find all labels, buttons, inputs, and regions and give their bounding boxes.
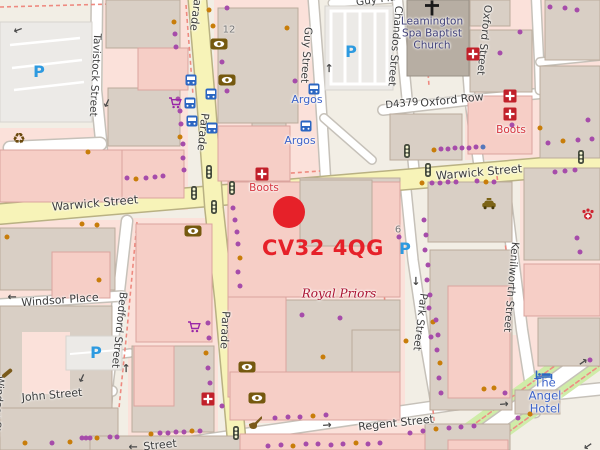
eye-icon — [249, 393, 266, 404]
poi-dot — [546, 141, 551, 146]
poi-dot — [80, 222, 85, 227]
poi-dot — [434, 427, 439, 432]
pharmacy-icon — [202, 393, 215, 406]
poi-dot — [590, 137, 595, 142]
pipe-icon — [248, 416, 262, 430]
john-street-label: John Street — [21, 386, 83, 404]
poi-dot — [484, 180, 489, 185]
poi-dot — [432, 148, 437, 153]
poi-dot — [321, 355, 326, 360]
poi-dot — [427, 306, 432, 311]
poi-dot — [426, 263, 431, 268]
poi-dot — [453, 146, 458, 151]
pharmacy-icon — [504, 90, 517, 103]
road-ref-d4379: D4379 — [385, 97, 419, 111]
park-street-label: Park Street — [411, 293, 430, 352]
poi-dot — [378, 441, 383, 446]
poi-dot — [460, 146, 465, 151]
poi-dot — [425, 278, 430, 283]
poi-dot — [424, 233, 429, 238]
oxford-street-label: Oxford Street — [474, 4, 493, 76]
oneway-arrow: → — [100, 96, 114, 109]
poi-dot — [153, 175, 158, 180]
poi-dot — [538, 126, 543, 131]
bus-stop-icon — [184, 97, 196, 109]
shopping-cart-icon — [187, 321, 201, 334]
church-cross-icon — [425, 1, 439, 16]
poi-dot — [516, 416, 521, 421]
postcode-label: CV32 4QG — [262, 236, 384, 260]
traffic-light-icon — [190, 186, 198, 200]
poi-dot — [211, 24, 216, 29]
poi-dot — [578, 250, 583, 255]
shopping-cart-icon — [168, 97, 182, 110]
poi-dot — [435, 348, 440, 353]
parade-label-top: Parade — [187, 0, 205, 32]
poi-dot — [220, 404, 225, 409]
eye-icon — [219, 75, 236, 86]
poi-dot — [548, 5, 553, 10]
poi-dot — [438, 361, 443, 366]
poi-dot — [420, 181, 425, 186]
poi-dot — [291, 444, 296, 449]
bus-stop-icon — [185, 74, 197, 86]
parking-icon: P — [33, 64, 45, 80]
poi-dot — [439, 391, 444, 396]
kenilworth-street-label: Kenilworth Street — [501, 241, 521, 332]
poi-dot — [421, 429, 426, 434]
poi-dot — [438, 181, 443, 186]
traffic-light-icon — [228, 181, 236, 195]
poi-dot — [447, 426, 452, 431]
poi-dot — [575, 8, 580, 13]
oneway-arrow: → — [411, 276, 422, 285]
poi-dot — [341, 442, 346, 447]
poi-dot — [172, 20, 177, 25]
poi-dot — [354, 441, 359, 446]
poi-dot — [86, 150, 91, 155]
poi-dot — [286, 415, 291, 420]
poi-dot — [231, 206, 236, 211]
baptist-church-label: Leamington Spa Baptist Church — [401, 16, 463, 51]
poi-dot — [208, 381, 213, 386]
oneway-arrow: → — [128, 442, 137, 450]
poi-dot — [206, 321, 211, 326]
poi-dot — [182, 430, 187, 435]
regent-street-label-west: Street — [143, 437, 178, 450]
poi-dot — [134, 177, 139, 182]
warwick-street-label-west: Warwick Street — [51, 192, 138, 213]
traffic-light-icon — [577, 150, 585, 164]
bus-stop-icon — [300, 120, 312, 132]
poi-dot — [266, 444, 271, 449]
poi-dot — [178, 135, 183, 140]
poi-dot — [182, 168, 187, 173]
traffic-light-icon — [424, 163, 432, 177]
poi-dot — [586, 118, 591, 123]
poi-dot — [166, 431, 171, 436]
poi-dot — [95, 436, 100, 441]
poi-dot — [481, 145, 486, 150]
pharmacy-icon — [467, 48, 480, 61]
poi-dot — [207, 8, 212, 13]
poi-dot — [5, 235, 10, 240]
boots-label-west: Boots — [249, 183, 279, 195]
poi-dot — [434, 318, 439, 323]
oneway-arrow: → — [499, 398, 509, 410]
parking-icon: P — [399, 241, 411, 257]
royal-priors-label: Royal Priors — [302, 287, 377, 300]
poi-dot — [439, 147, 444, 152]
poi-dot — [576, 138, 581, 143]
poi-dot — [161, 174, 166, 179]
poi-dot — [174, 45, 179, 50]
poi-dot — [324, 413, 329, 418]
bus-stop-icon — [186, 115, 198, 127]
poi-dot — [97, 278, 102, 283]
bus-stop-icon — [205, 88, 217, 100]
poi-dot — [23, 441, 28, 446]
poi-dot — [198, 429, 203, 434]
poi-dot — [428, 293, 433, 298]
poi-dot — [446, 147, 451, 152]
poi-dot — [475, 179, 480, 184]
traffic-light-icon — [232, 426, 240, 440]
poi-dot — [144, 176, 149, 181]
map-annotations: ParadeParadeParadeTavistock StreetBedfor… — [0, 0, 600, 450]
poi-dot — [225, 89, 230, 94]
poi-dot — [179, 122, 184, 127]
eye-icon — [239, 362, 256, 373]
poi-dot — [492, 180, 497, 185]
poi-dot — [190, 429, 195, 434]
poi-dot — [528, 412, 533, 417]
poi-dot — [446, 180, 451, 185]
poi-dot — [429, 335, 434, 340]
bus-stop-icon — [308, 83, 320, 95]
poi-dot — [422, 218, 427, 223]
vet-icon — [581, 208, 595, 221]
poi-dot — [553, 170, 558, 175]
windsor-street-label: Windsor Str — [0, 375, 6, 437]
bedford-street-label: Bedford Street — [109, 291, 129, 368]
bus-stop-icon — [206, 122, 218, 134]
traffic-light-icon — [210, 200, 218, 214]
poi-dot — [561, 139, 566, 144]
poi-dot — [300, 313, 305, 318]
argos-label-1: Argos — [291, 94, 322, 106]
traffic-light-icon — [205, 165, 213, 179]
poi-dot — [430, 181, 435, 186]
poi-dot — [338, 316, 343, 321]
poi-dot — [575, 236, 580, 241]
poi-dot — [115, 435, 120, 440]
traffic-light-icon — [403, 144, 411, 158]
poi-dot — [492, 386, 497, 391]
poi-dot — [366, 442, 371, 447]
poi-dot — [298, 415, 303, 420]
argos-label-2: Argos — [284, 135, 315, 147]
guy-street-label: Guy Street — [298, 27, 314, 84]
poi-dot — [206, 366, 211, 371]
poi-dot — [273, 416, 278, 421]
poi-dot — [238, 256, 243, 261]
poi-dot — [459, 425, 464, 430]
poi-dot — [563, 169, 568, 174]
poi-dot — [88, 436, 93, 441]
poi-dot — [311, 414, 316, 419]
poi-dot — [518, 30, 523, 35]
poi-dot — [510, 123, 515, 128]
poi-dot — [204, 351, 209, 356]
poi-dot — [181, 142, 186, 147]
poi-dot — [437, 376, 442, 381]
poi-dot — [235, 230, 240, 235]
poi-dot — [436, 333, 441, 338]
poi-dot — [233, 218, 238, 223]
oneway-arrow: → — [12, 23, 24, 36]
pharmacy-icon — [256, 168, 269, 181]
poi-dot — [304, 442, 309, 447]
eye-icon — [211, 39, 228, 50]
windsor-place-label: Windsor Place — [21, 291, 99, 309]
bed-icon — [536, 370, 553, 381]
parking-icon: P — [345, 44, 357, 60]
poi-dot — [236, 242, 241, 247]
oneway-arrow: → — [121, 363, 132, 372]
poi-dot — [404, 339, 409, 344]
poi-dot — [482, 387, 487, 392]
poi-dot — [95, 223, 100, 228]
house-number: 12 — [223, 25, 236, 36]
poi-dot — [68, 440, 73, 445]
poi-dot — [158, 431, 163, 436]
poi-dot — [472, 424, 477, 429]
poi-dot — [454, 180, 459, 185]
poi-dot — [279, 443, 284, 448]
poi-dot — [225, 6, 230, 11]
poi-dot — [125, 176, 130, 181]
taxi-icon — [482, 198, 497, 210]
oneway-arrow: → — [324, 63, 335, 72]
poi-dot — [50, 441, 55, 446]
poi-dot — [563, 6, 568, 11]
pharmacy-icon — [504, 108, 517, 121]
map-canvas[interactable]: ParadeParadeParadeTavistock StreetBedfor… — [0, 0, 600, 450]
poi-dot — [220, 60, 225, 65]
parade-label-bottom: Parade — [218, 311, 233, 350]
poi-dot — [498, 51, 503, 56]
poi-dot — [408, 431, 413, 436]
oxford-row-label: Oxford Row — [420, 90, 484, 110]
poi-dot — [181, 156, 186, 161]
postcode-marker — [273, 196, 305, 228]
poi-dot — [316, 442, 321, 447]
poi-dot — [236, 270, 241, 275]
poi-dot — [149, 432, 154, 437]
poi-dot — [173, 32, 178, 37]
eye-icon — [185, 226, 202, 237]
tool-icon — [1, 371, 13, 375]
poi-dot — [238, 284, 243, 289]
oneway-arrow: → — [322, 419, 332, 431]
poi-dot — [467, 146, 472, 151]
poi-dot — [329, 443, 334, 448]
poi-dot — [108, 435, 113, 440]
poi-dot — [293, 79, 298, 84]
poi-dot — [573, 168, 578, 173]
poi-dot — [503, 391, 508, 396]
oneway-arrow: → — [7, 292, 16, 303]
parking-icon: P — [90, 345, 102, 361]
poi-dot — [285, 26, 290, 31]
poi-dot — [174, 430, 179, 435]
recycling-icon: ♻ — [12, 132, 25, 147]
poi-dot — [207, 336, 212, 341]
oneway-arrow: → — [581, 439, 595, 450]
poi-dot — [474, 145, 479, 150]
angel-hotel-label: The Angel Hotel — [518, 377, 573, 416]
oneway-arrow: → — [75, 371, 89, 384]
poi-dot — [423, 248, 428, 253]
